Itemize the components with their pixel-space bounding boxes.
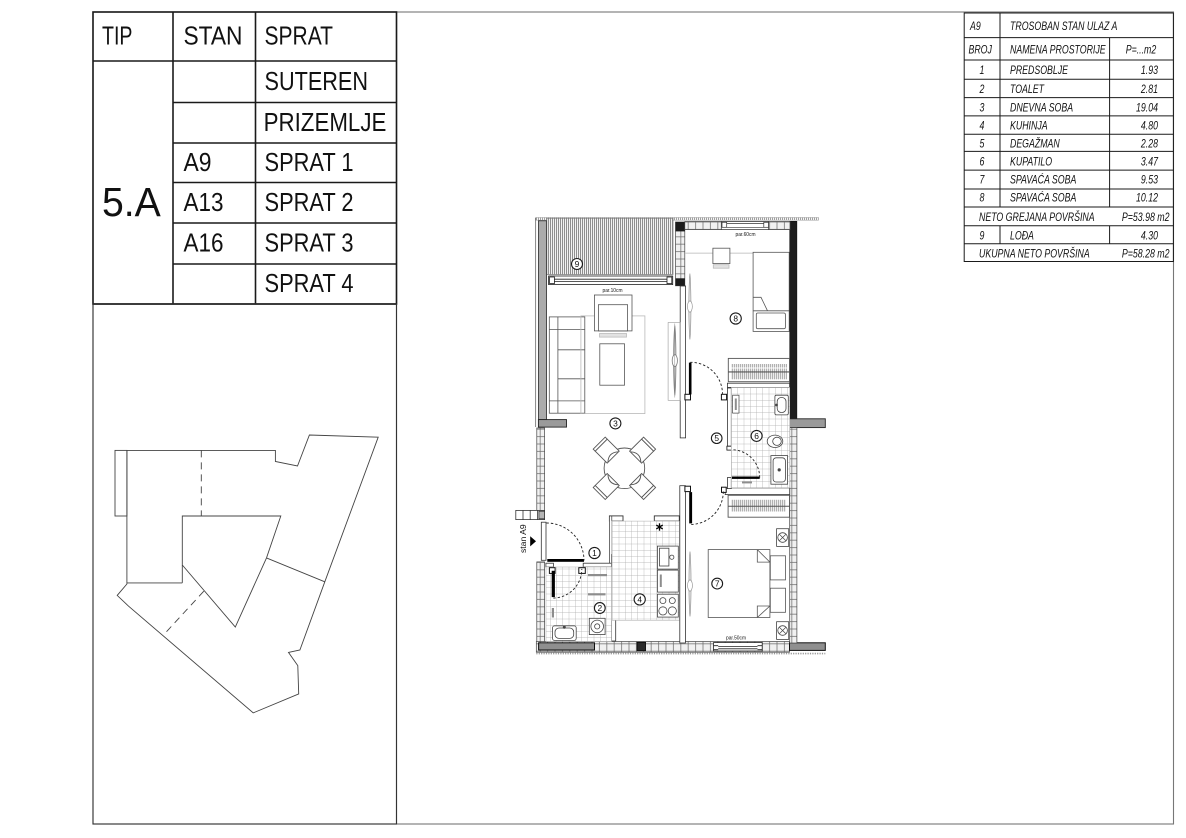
svg-text:DEGAŽMAN: DEGAŽMAN <box>1010 135 1060 150</box>
svg-text:P=58.28 m2: P=58.28 m2 <box>1122 247 1170 261</box>
svg-text:NAMENA PROSTORIJE: NAMENA PROSTORIJE <box>1010 43 1106 57</box>
svg-text:UKUPNA NETO POVRŠINA: UKUPNA NETO POVRŠINA <box>979 246 1090 261</box>
svg-text:4.80: 4.80 <box>1141 119 1158 133</box>
svg-text:6: 6 <box>754 431 759 441</box>
svg-text:1.93: 1.93 <box>1141 63 1158 77</box>
svg-text:8: 8 <box>980 191 985 205</box>
svg-text:SPRAT 3: SPRAT 3 <box>265 228 354 258</box>
svg-text:4: 4 <box>980 119 985 133</box>
svg-text:A13: A13 <box>184 187 224 217</box>
svg-text:8: 8 <box>733 314 738 324</box>
svg-text:SPAVAĆA SOBA: SPAVAĆA SOBA <box>1010 172 1076 187</box>
svg-text:DNEVNA SOBA: DNEVNA SOBA <box>1010 100 1073 114</box>
svg-text:TROSOBAN STAN ULAZ A: TROSOBAN STAN ULAZ A <box>1010 19 1117 33</box>
svg-text:2.28: 2.28 <box>1140 136 1158 150</box>
svg-text:PRIZEMLJE: PRIZEMLJE <box>264 107 387 137</box>
svg-text:5: 5 <box>714 433 719 443</box>
svg-text:SPRAT: SPRAT <box>265 21 334 51</box>
svg-text:2: 2 <box>597 603 602 613</box>
svg-text:par.60cm: par.60cm <box>736 232 756 238</box>
svg-text:P=53.98 m2: P=53.98 m2 <box>1122 210 1170 224</box>
svg-text:9: 9 <box>980 228 985 242</box>
svg-text:TOALET: TOALET <box>1010 82 1045 96</box>
svg-text:SPRAT 4: SPRAT 4 <box>265 268 354 298</box>
svg-text:LOĐA: LOĐA <box>1010 228 1034 242</box>
svg-text:6: 6 <box>980 154 985 168</box>
svg-text:P=...m2: P=...m2 <box>1126 43 1157 57</box>
svg-text:NETO GREJANA POVRŠINA: NETO GREJANA POVRŠINA <box>979 209 1095 224</box>
svg-text:2.81: 2.81 <box>1140 82 1158 96</box>
svg-text:5.A: 5.A <box>102 179 161 225</box>
svg-text:STAN: STAN <box>184 21 243 51</box>
svg-text:2: 2 <box>979 82 985 96</box>
svg-text:9: 9 <box>575 259 580 269</box>
svg-text:A9: A9 <box>969 19 981 33</box>
svg-text:TIP: TIP <box>102 21 133 51</box>
svg-text:BROJ: BROJ <box>969 43 993 57</box>
svg-text:SPAVAĆA SOBA: SPAVAĆA SOBA <box>1010 190 1076 205</box>
svg-text:10.12: 10.12 <box>1136 191 1158 205</box>
svg-text:par.50cm: par.50cm <box>726 636 746 642</box>
svg-text:4: 4 <box>637 594 642 604</box>
svg-text:1: 1 <box>592 548 597 558</box>
svg-text:4.30: 4.30 <box>1141 228 1158 242</box>
svg-text:SPRAT 2: SPRAT 2 <box>265 187 354 217</box>
svg-text:9.53: 9.53 <box>1141 173 1158 187</box>
svg-text:A9: A9 <box>184 147 212 177</box>
svg-text:3: 3 <box>980 100 985 114</box>
svg-text:KUPATILO: KUPATILO <box>1010 154 1052 168</box>
svg-text:3: 3 <box>613 418 618 428</box>
svg-text:SPRAT 1: SPRAT 1 <box>265 147 354 177</box>
svg-text:5: 5 <box>980 136 985 150</box>
svg-text:1: 1 <box>980 63 985 77</box>
svg-text:KUHINJA: KUHINJA <box>1010 119 1048 133</box>
svg-text:par.10cm: par.10cm <box>603 288 623 294</box>
svg-text:A16: A16 <box>184 228 224 258</box>
svg-text:SUTEREN: SUTEREN <box>265 66 369 96</box>
svg-text:PREDSOBLJE: PREDSOBLJE <box>1010 63 1069 77</box>
svg-text:stan A9: stan A9 <box>518 524 528 553</box>
svg-text:19.04: 19.04 <box>1136 100 1158 114</box>
svg-text:3.47: 3.47 <box>1141 154 1159 168</box>
svg-text:7: 7 <box>715 579 720 589</box>
